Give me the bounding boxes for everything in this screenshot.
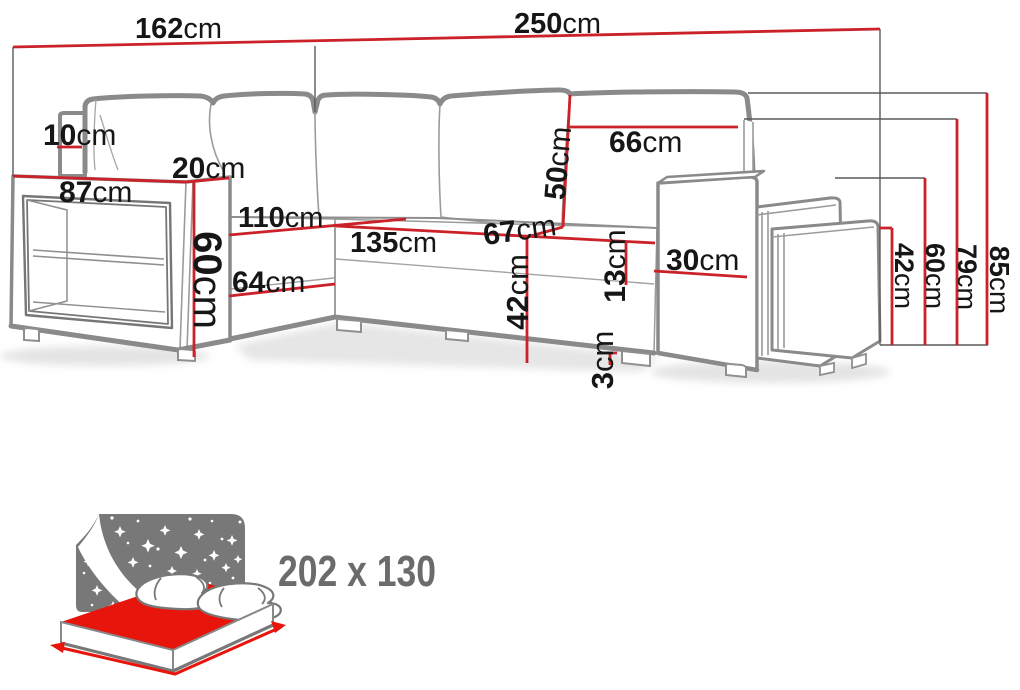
svg-text:42cm: 42cm — [500, 254, 535, 330]
svg-text:202 x 130: 202 x 130 — [278, 547, 436, 596]
svg-text:64cm: 64cm — [232, 266, 305, 299]
svg-text:85cm: 85cm — [984, 246, 1015, 314]
svg-text:135cm: 135cm — [350, 227, 437, 259]
svg-text:30cm: 30cm — [666, 244, 739, 277]
svg-text:3cm: 3cm — [585, 331, 620, 390]
svg-text:60cm: 60cm — [920, 243, 950, 309]
svg-text:66cm: 66cm — [609, 126, 682, 159]
svg-text:42cm: 42cm — [889, 243, 919, 309]
svg-text:79cm: 79cm — [952, 244, 982, 310]
svg-text:10cm: 10cm — [43, 119, 116, 152]
svg-text:87cm: 87cm — [59, 176, 132, 209]
svg-text:50cm: 50cm — [539, 125, 578, 201]
svg-text:13cm: 13cm — [599, 229, 632, 302]
svg-text:20cm: 20cm — [172, 152, 245, 185]
svg-text:162cm: 162cm — [135, 13, 222, 45]
svg-text:250cm: 250cm — [514, 8, 601, 40]
svg-text:60cm: 60cm — [185, 231, 229, 329]
svg-text:110cm: 110cm — [238, 202, 323, 234]
